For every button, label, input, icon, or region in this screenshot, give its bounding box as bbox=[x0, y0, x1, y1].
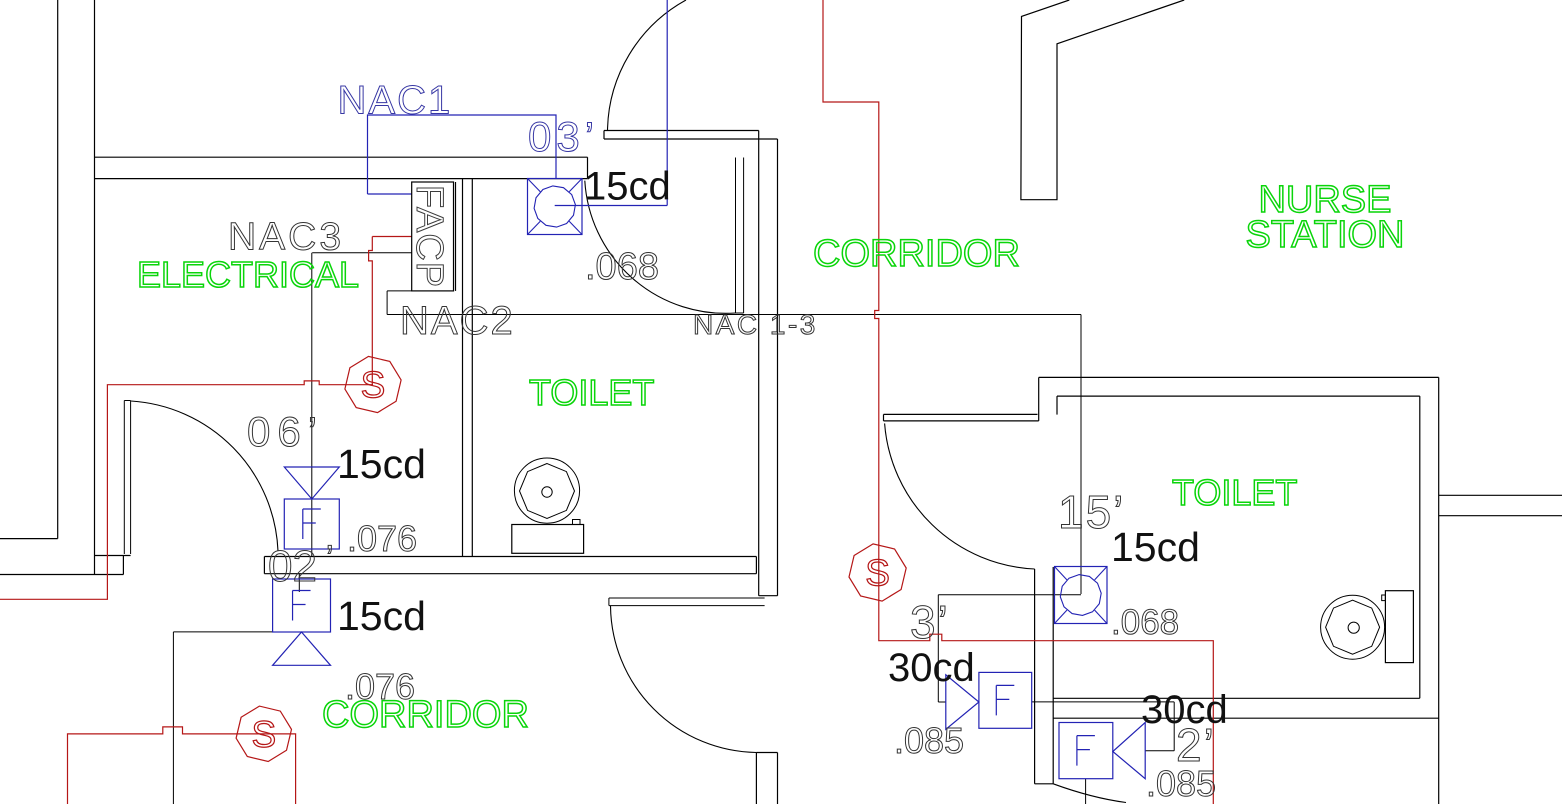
svg-text:.085: .085 bbox=[894, 720, 964, 761]
svg-text:15cd: 15cd bbox=[337, 441, 426, 487]
svg-text:.068: .068 bbox=[1111, 603, 1179, 642]
svg-text:STATION: STATION bbox=[1245, 214, 1404, 256]
svg-text:.068: .068 bbox=[585, 246, 659, 288]
svg-text:06’: 06’ bbox=[247, 408, 324, 455]
svg-text:03’: 03’ bbox=[528, 113, 599, 160]
svg-text:15cd: 15cd bbox=[337, 593, 426, 639]
svg-text:.085: .085 bbox=[1146, 763, 1216, 804]
svg-text:S: S bbox=[251, 714, 276, 755]
svg-text:3’: 3’ bbox=[910, 596, 950, 648]
svg-text:30cd: 30cd bbox=[888, 646, 975, 690]
svg-text:ELECTRICAL: ELECTRICAL bbox=[137, 254, 359, 295]
svg-text:NAC1: NAC1 bbox=[338, 79, 453, 123]
svg-text:NAC 1-3: NAC 1-3 bbox=[693, 309, 818, 340]
svg-text:15cd: 15cd bbox=[1111, 524, 1200, 570]
svg-text:NAC3: NAC3 bbox=[228, 216, 344, 259]
svg-text:CORRIDOR: CORRIDOR bbox=[813, 233, 1020, 275]
svg-text:TOILET: TOILET bbox=[529, 372, 654, 413]
svg-text:TOILET: TOILET bbox=[1172, 472, 1297, 513]
svg-text:FACP: FACP bbox=[408, 185, 450, 288]
svg-text:02: 02 bbox=[268, 542, 317, 591]
svg-text:15cd: 15cd bbox=[584, 165, 671, 209]
svg-text:.076: .076 bbox=[345, 666, 415, 707]
svg-text:.076: .076 bbox=[347, 518, 417, 559]
svg-text:NAC2: NAC2 bbox=[400, 299, 515, 343]
svg-text:S: S bbox=[361, 365, 386, 406]
svg-text:,: , bbox=[325, 519, 334, 557]
svg-text:S: S bbox=[865, 553, 890, 594]
